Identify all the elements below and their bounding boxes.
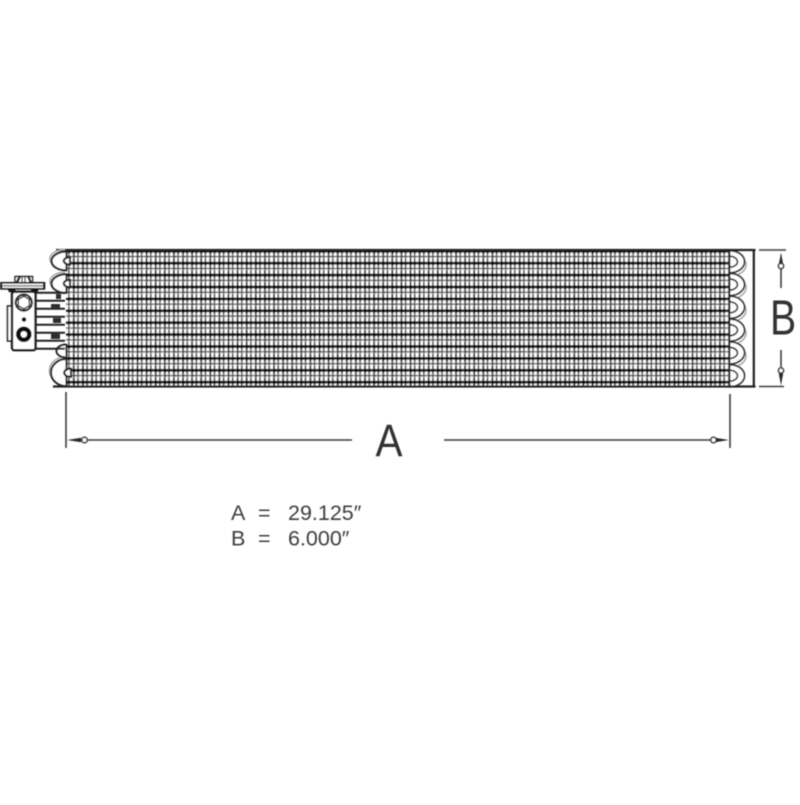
- svg-text:=: =: [258, 527, 271, 551]
- svg-text:B: B: [231, 527, 245, 551]
- svg-text:B: B: [770, 291, 796, 345]
- svg-text:A: A: [376, 416, 403, 466]
- svg-text:6.000″: 6.000″: [288, 527, 350, 551]
- svg-text:29.125″: 29.125″: [288, 501, 362, 525]
- svg-text:=: =: [258, 501, 271, 525]
- svg-text:A: A: [231, 501, 246, 525]
